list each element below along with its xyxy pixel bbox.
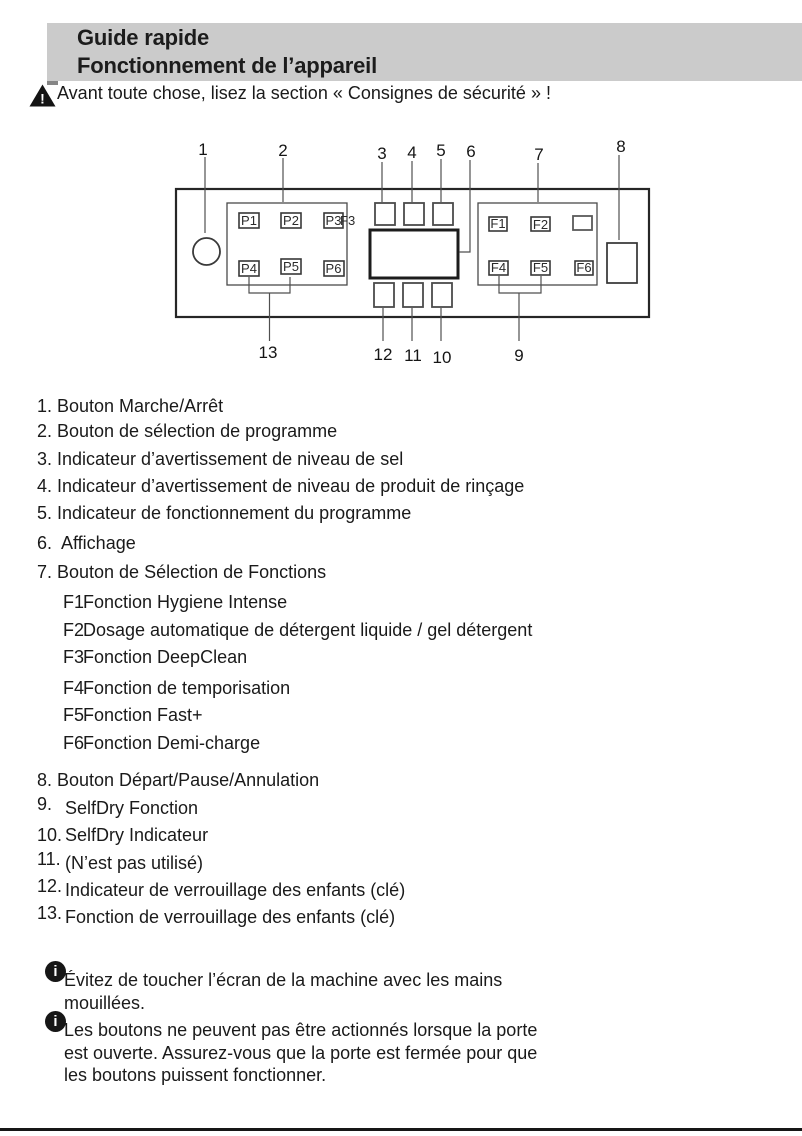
blank-button — [573, 216, 592, 230]
page-title-line2: Fonctionnement de l’appareil — [77, 52, 377, 80]
callout-8: 8 — [616, 137, 625, 156]
list-item: 7.Bouton de Sélection de Fonctions — [37, 563, 326, 581]
panel-outline — [176, 189, 649, 317]
function-text: Fonction Fast+ — [83, 705, 203, 725]
list-item: 9.SelfDry Fonction — [37, 799, 198, 817]
warning-text: Avant toute chose, lisez la section « Co… — [57, 84, 551, 102]
list-item-number: 13. — [37, 904, 65, 922]
list-item-text: Affichage — [61, 533, 136, 553]
function-item: F1Fonction Hygiene Intense — [63, 593, 287, 611]
function-code: F3 — [63, 648, 83, 666]
list-item-number: 2. — [37, 422, 57, 440]
function-item: F2Dosage automatique de détergent liquid… — [63, 621, 532, 639]
callout-1: 1 — [198, 140, 207, 159]
start-pause-button — [607, 243, 637, 283]
display — [370, 230, 458, 278]
control-panel-diagram: P1 P2 P3 P4 P5 P6 F3 F1 F2 F4 F5 F6 — [150, 130, 670, 375]
program-button-p2-label: P2 — [283, 213, 299, 228]
list-item: 4.Indicateur d’avertissement de niveau d… — [37, 477, 524, 495]
function-item: F5Fonction Fast+ — [63, 706, 203, 724]
function-item: F3Fonction DeepClean — [63, 648, 247, 666]
list-item-text: SelfDry Fonction — [65, 798, 198, 818]
list-item-number: 11. — [37, 850, 65, 868]
list-item: 8.Bouton Départ/Pause/Annulation — [37, 771, 319, 789]
list-item-number: 6. — [37, 534, 61, 552]
program-indicator — [433, 203, 453, 225]
salt-indicator — [375, 203, 395, 225]
list-item-text: SelfDry Indicateur — [65, 825, 208, 845]
callout-11: 11 — [404, 346, 422, 365]
list-item-text: Bouton de Sélection de Fonctions — [57, 562, 326, 582]
list-item-text: Fonction de verrouillage des enfants (cl… — [65, 907, 395, 927]
page-bottom-rule — [0, 1128, 802, 1131]
list-item-text: (N’est pas utilisé) — [65, 853, 203, 873]
list-item-number: 5. — [37, 504, 57, 522]
list-item-number: 9. — [37, 795, 65, 813]
function-item: F6Fonction Demi-charge — [63, 734, 260, 752]
unused-indicator — [403, 283, 423, 307]
callout-5: 5 — [436, 141, 445, 160]
note-text: Évitez de toucher l’écran de la machine … — [64, 969, 552, 1014]
list-item-number: 8. — [37, 771, 57, 789]
power-button — [193, 238, 220, 265]
list-item-text: Bouton de sélection de programme — [57, 421, 337, 441]
function-button-f2-label: F2 — [533, 217, 548, 232]
callout-13: 13 — [259, 343, 278, 362]
list-item-number: 7. — [37, 563, 57, 581]
list-item: 11.(N’est pas utilisé) — [37, 854, 203, 872]
list-item-text: Indicateur de fonctionnement du programm… — [57, 503, 411, 523]
svg-text:!: ! — [40, 91, 45, 107]
list-item-number: 4. — [37, 477, 57, 495]
callout-7: 7 — [534, 145, 543, 164]
function-code: F5 — [63, 706, 83, 724]
warning-triangle-icon: ! — [29, 84, 56, 112]
function-button-f4-label: F4 — [491, 260, 506, 275]
callout-4: 4 — [407, 143, 416, 162]
list-item: 10.SelfDry Indicateur — [37, 826, 208, 844]
function-text: Fonction de temporisation — [83, 678, 290, 698]
list-item: 6.Affichage — [37, 534, 136, 552]
list-item-text: Bouton Marche/Arrêt — [57, 396, 223, 416]
list-item-number: 3. — [37, 450, 57, 468]
function-text: Fonction Hygiene Intense — [83, 592, 287, 612]
function-item: F4Fonction de temporisation — [63, 679, 290, 697]
callout-9: 9 — [514, 346, 523, 365]
callout-2: 2 — [278, 141, 287, 160]
list-item-text: Bouton Départ/Pause/Annulation — [57, 770, 319, 790]
list-item-number: 10. — [37, 826, 65, 844]
callout-12: 12 — [374, 345, 393, 364]
function-text: Fonction DeepClean — [83, 647, 247, 667]
list-item-text: Indicateur de verrouillage des enfants (… — [65, 880, 405, 900]
callout-6: 6 — [466, 142, 475, 161]
callout-3: 3 — [377, 144, 386, 163]
function-code: F6 — [63, 734, 83, 752]
rinse-aid-indicator — [404, 203, 424, 225]
list-item-number: 1. — [37, 397, 57, 415]
list-item-text: Indicateur d’avertissement de niveau de … — [57, 449, 403, 469]
stray-f3-label: F3 — [340, 213, 355, 228]
function-code: F2 — [63, 621, 83, 639]
list-item: 2.Bouton de sélection de programme — [37, 422, 337, 440]
list-item: 1.Bouton Marche/Arrêt — [37, 397, 223, 415]
list-item-text: Indicateur d’avertissement de niveau de … — [57, 476, 524, 496]
page-title-line1: Guide rapide — [77, 24, 209, 52]
function-button-f1-label: F1 — [490, 216, 505, 231]
function-button-f6-label: F6 — [576, 260, 591, 275]
list-item: 12.Indicateur de verrouillage des enfant… — [37, 881, 405, 899]
info-icon: i — [45, 1011, 66, 1032]
info-icon: i — [45, 961, 66, 982]
selfdry-indicator — [432, 283, 452, 307]
child-lock-indicator — [374, 283, 394, 307]
program-button-p6-label: P6 — [326, 261, 342, 276]
manual-page: Guide rapide Fonctionnement de l’apparei… — [0, 0, 802, 1136]
function-text: Dosage automatique de détergent liquide … — [83, 620, 532, 640]
list-item: 13.Fonction de verrouillage des enfants … — [37, 908, 395, 926]
function-code: F4 — [63, 679, 83, 697]
function-text: Fonction Demi-charge — [83, 733, 260, 753]
program-button-p5-label: P5 — [283, 259, 299, 274]
list-item-number: 12. — [37, 877, 65, 895]
list-item: 3.Indicateur d’avertissement de niveau d… — [37, 450, 403, 468]
callout-10: 10 — [433, 348, 452, 367]
program-button-p4-label: P4 — [241, 261, 257, 276]
note-text: Les boutons ne peuvent pas être actionné… — [64, 1019, 552, 1087]
function-code: F1 — [63, 593, 83, 611]
function-button-f5-label: F5 — [533, 260, 548, 275]
callout-lines — [205, 155, 619, 341]
list-item: 5.Indicateur de fonctionnement du progra… — [37, 504, 411, 522]
program-button-p1-label: P1 — [241, 213, 257, 228]
